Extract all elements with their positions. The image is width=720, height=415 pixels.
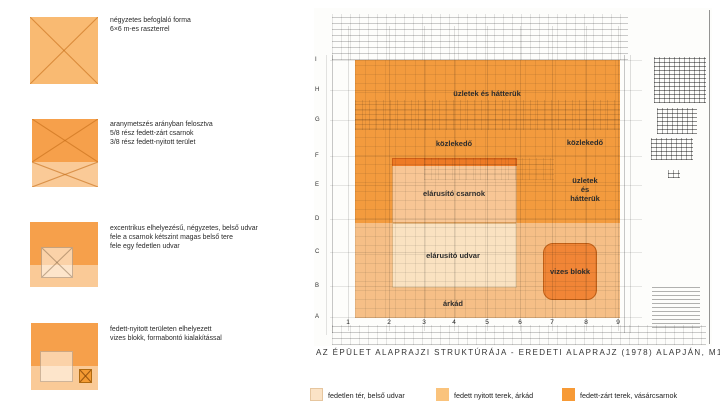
grid-row-letter: E bbox=[315, 182, 319, 188]
label-arcade: árkád bbox=[443, 299, 463, 308]
grid-column-number: 9 bbox=[616, 319, 620, 326]
grid-row-letter: D bbox=[315, 216, 319, 222]
concept-2-open-part bbox=[32, 162, 98, 187]
detail-drawing bbox=[668, 170, 680, 178]
title-block-text bbox=[652, 286, 700, 328]
label-line: és bbox=[570, 185, 600, 194]
overlay-closed-top bbox=[392, 60, 517, 166]
legend-label-uncovered: fedetlen tér, belső udvar bbox=[328, 391, 405, 400]
grid-column-number: 7 bbox=[550, 319, 554, 326]
concept-4-square bbox=[31, 323, 98, 390]
note-line: négyzetes befoglaló forma bbox=[110, 16, 320, 25]
note-line: aranymetszés arányban felosztva bbox=[110, 120, 320, 129]
scan-sheet-edge bbox=[709, 10, 710, 344]
grid-column-number: 1 bbox=[346, 319, 350, 326]
grid-row-letter: B bbox=[315, 283, 319, 289]
grid-column-number: 5 bbox=[485, 319, 489, 326]
detail-drawing bbox=[651, 138, 693, 160]
legend-swatch-covered-closed bbox=[562, 388, 575, 401]
x-mark-icon bbox=[30, 17, 98, 84]
note-line: excentrikus elhelyezésű, négyzetes, bels… bbox=[110, 224, 320, 233]
note-line: fedett-nyitott területen elhelyezett bbox=[110, 325, 320, 334]
x-mark-icon bbox=[42, 248, 72, 277]
concept-3-square bbox=[30, 222, 98, 287]
concept-1-square bbox=[30, 17, 98, 84]
floor-plan-scan: 123456789IHGFEDCBA üzletek és hátterük k… bbox=[314, 8, 712, 346]
grid-column-number: 2 bbox=[387, 319, 391, 326]
scan-right-margin-line bbox=[624, 55, 625, 333]
label-circulation-left: közlekedő bbox=[436, 139, 472, 148]
note-line: 6×6 m-es raszterrel bbox=[110, 25, 320, 34]
grid-column-number: 6 bbox=[518, 319, 522, 326]
grid-row-letter: A bbox=[315, 314, 319, 320]
concept-2-closed-part bbox=[32, 119, 98, 162]
scan-left-margin-line bbox=[326, 55, 327, 335]
label-circulation-right: közlekedő bbox=[567, 138, 603, 147]
top-dimension-strip bbox=[332, 14, 628, 60]
x-mark-icon bbox=[80, 370, 91, 382]
concept-3-note: excentrikus elhelyezésű, négyzetes, bels… bbox=[110, 224, 320, 251]
page: négyzetes befoglaló forma 6×6 m-es raszt… bbox=[0, 0, 720, 415]
grid-column-number: 4 bbox=[452, 319, 456, 326]
detail-drawing bbox=[657, 108, 697, 134]
label-sales-courtyard: elárusító udvar bbox=[426, 251, 480, 260]
label-line: hátterük bbox=[570, 194, 600, 203]
label-sales-hall: elárusító csarnok bbox=[423, 189, 485, 198]
grid-column-number: 8 bbox=[584, 319, 588, 326]
concept-4-note: fedett-nyitott területen elhelyezett viz… bbox=[110, 325, 320, 343]
x-mark-icon bbox=[32, 162, 98, 187]
legend-label-covered-open: fedett nyitott terek, árkád bbox=[454, 391, 533, 400]
label-shops-right: üzletek és hátterük bbox=[570, 176, 600, 203]
note-line: 3/8 rész fedett-nyitott terület bbox=[110, 138, 320, 147]
note-line: vizes blokk, formabontó kialakítással bbox=[110, 334, 320, 343]
concept-1-note: négyzetes befoglaló forma 6×6 m-es raszt… bbox=[110, 16, 320, 34]
label-line: üzletek bbox=[570, 176, 600, 185]
scan-right-margin-line bbox=[630, 55, 631, 333]
legend-label-covered-closed: fedett-zárt terek, vásárcsarnok bbox=[580, 391, 677, 400]
concept-3-courtyard bbox=[41, 247, 73, 278]
grid-column-number: 3 bbox=[422, 319, 426, 326]
scan-left-margin-line bbox=[332, 55, 333, 333]
concept-4-courtyard bbox=[40, 351, 73, 382]
grid-row-letter: F bbox=[315, 153, 319, 159]
legend-swatch-covered-open bbox=[436, 388, 449, 401]
grid-row-letter: H bbox=[315, 87, 319, 93]
detail-drawing bbox=[654, 57, 706, 103]
note-line: fele egy fedetlen udvar bbox=[110, 242, 320, 251]
concept-4-wet-block bbox=[79, 369, 92, 383]
note-line: fele a csarnok kétszint magas belső tere bbox=[110, 233, 320, 242]
caption: AZ ÉPÜLET ALAPRAJZI STRUKTÚRÁJA - EREDET… bbox=[316, 348, 720, 357]
overlay-closed-left bbox=[355, 60, 392, 223]
grid-row-letter: G bbox=[315, 117, 320, 123]
note-line: 5/8 rész fedett-zárt csarnok bbox=[110, 129, 320, 138]
overlay-open-left bbox=[355, 223, 392, 318]
legend-swatch-uncovered bbox=[310, 388, 323, 401]
label-shops-top: üzletek és hátterük bbox=[453, 89, 521, 98]
concept-2-square bbox=[32, 119, 98, 187]
grid-row-letter: I bbox=[315, 57, 317, 63]
label-wet-block: vizes blokk bbox=[550, 267, 590, 276]
x-mark-icon bbox=[32, 119, 98, 162]
grid-row-letter: C bbox=[315, 249, 319, 255]
concept-2-note: aranymetszés arányban felosztva 5/8 rész… bbox=[110, 120, 320, 147]
